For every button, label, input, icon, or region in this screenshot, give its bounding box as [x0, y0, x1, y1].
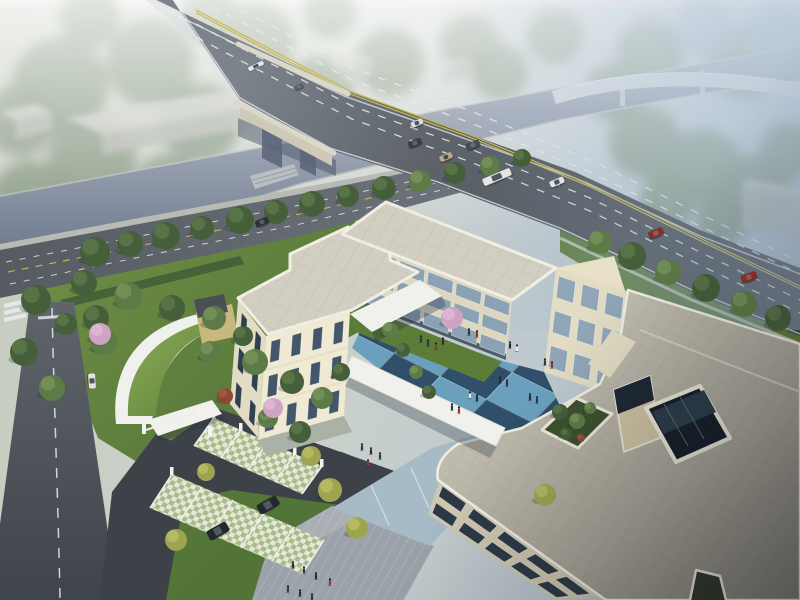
rendering-canvas [0, 0, 800, 600]
architectural-rendering [0, 0, 800, 600]
corner-vignette [0, 0, 800, 600]
